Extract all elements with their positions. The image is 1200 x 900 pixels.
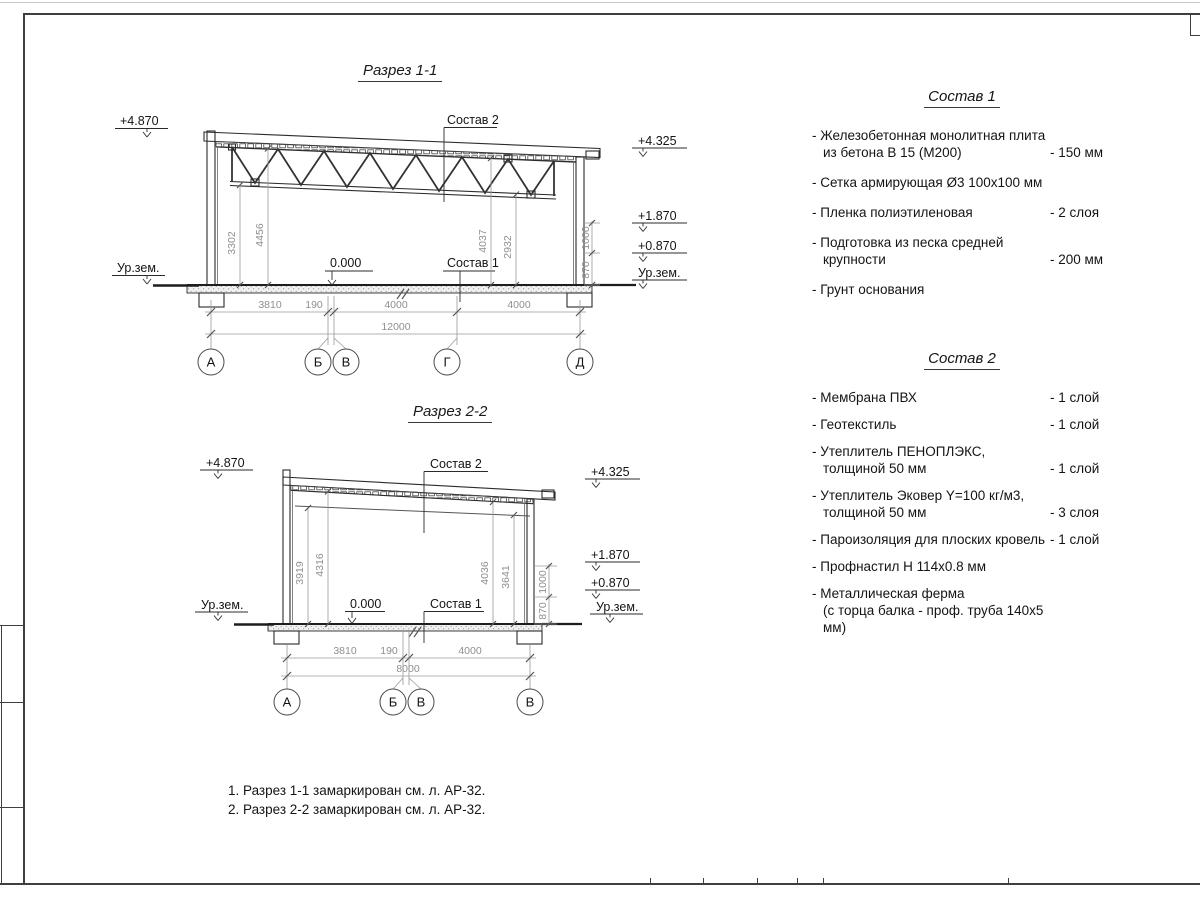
s1-dim-chain: 3810 190 4000 4000 12000	[205, 296, 586, 349]
material-item: - Геотекстиль - 1 слой	[812, 416, 1112, 433]
elevation-value: +0.870	[591, 576, 630, 590]
section2-title: Разрез 2-2	[408, 403, 492, 423]
section1-drawing: Состав 2 Состав 1 0.000 +4.870 Ур.зем. +…	[95, 95, 695, 395]
composition2-title: Состав 2	[812, 350, 1112, 370]
elevation-arrow-icon	[639, 280, 647, 289]
elevation-value: +1.870	[591, 548, 630, 562]
s2-footing	[517, 631, 542, 644]
material-item: - Металлическая ферма (с торца балка - п…	[812, 585, 1112, 636]
material-item: - Подготовка из песка средней крупности …	[812, 234, 1112, 268]
left-stamp-edge	[1, 625, 2, 883]
material-qty: - 200 мм	[1046, 251, 1112, 268]
walldim-1000: 1000	[537, 570, 549, 594]
hdim-190: 190	[305, 299, 323, 311]
note-line-2: 2. Разрез 2-2 замаркирован см. л. АР-32.	[228, 800, 485, 819]
s2-sostav1-callout: Состав 1	[424, 597, 484, 643]
frame-bottom-line	[0, 883, 1200, 885]
section1-title: Разрез 1-1	[358, 62, 442, 82]
material-item: - Пароизоляция для плоских кровель - 1 с…	[812, 531, 1112, 548]
hdim-4000: 4000	[384, 299, 408, 311]
composition2-title-text: Состав 2	[924, 350, 1000, 370]
frame-top-line	[23, 13, 1200, 15]
axis-B: Б	[314, 355, 323, 370]
hdim-4000: 4000	[458, 645, 482, 657]
titleblock-tick	[703, 878, 704, 883]
s1-sostav1-callout: Состав 1	[443, 256, 499, 302]
material-qty: - 1 слой	[1046, 460, 1112, 477]
s2-footing	[274, 631, 299, 644]
axis-B: Б	[389, 695, 398, 710]
s2-zero-label: 0.000	[350, 597, 381, 611]
material-item: - Профнастил Н 114х0.8 мм	[812, 558, 1112, 575]
composition2-panel: Состав 2 - Мембрана ПВХ - 1 слой - Геоте…	[812, 350, 1112, 646]
material-name: - Мембрана ПВХ	[812, 389, 1046, 406]
left-stamp-divider	[0, 625, 24, 626]
axis-A: А	[283, 695, 292, 710]
s2-elevation-right-2: +1.870	[585, 548, 640, 571]
elevation-value: Ур.зем.	[638, 266, 680, 280]
s2-zero-mark: 0.000	[345, 597, 385, 624]
titleblock-tick	[823, 878, 824, 883]
paper-edge-line	[0, 2, 1200, 3]
material-name: - Подготовка из песка средней крупности	[812, 234, 1046, 268]
s2-wall-dims: 1000 870	[534, 563, 557, 627]
vdim-4456: 4456	[254, 223, 266, 247]
vdim-2932: 2932	[502, 235, 514, 259]
vdim-3919: 3919	[294, 561, 306, 585]
elevation-arrow-icon	[214, 470, 222, 479]
elevation-value: +0.870	[638, 239, 677, 253]
frame-corner-box-left	[1190, 14, 1191, 35]
elevation-value: Ур.зем.	[117, 261, 159, 275]
s1-sostav2-label: Состав 2	[447, 113, 499, 127]
material-name: - Утеплитель ПЕНОПЛЭКС, толщиной 50 мм	[812, 443, 1046, 477]
sheet-notes: 1. Разрез 1-1 замаркирован см. л. АР-32.…	[228, 781, 485, 819]
s1-wall-dims: 1000 870	[580, 220, 600, 288]
elevation-arrow-icon	[592, 562, 600, 571]
elevation-arrow-icon	[592, 479, 600, 488]
elevation-value: Ур.зем.	[201, 598, 243, 612]
s2-elevation-right-ground: Ур.зем.	[590, 600, 643, 623]
vdim-4037: 4037	[477, 229, 489, 253]
elevation-value: +4.870	[206, 456, 245, 470]
hdim-190: 190	[380, 645, 398, 657]
frame-corner-box-bottom	[1190, 35, 1200, 36]
material-name: - Сетка армирующая Ø3 100х100 мм	[812, 174, 1046, 191]
axis-V: В	[342, 355, 351, 370]
vdim-3302: 3302	[226, 231, 238, 255]
note-line-1: 1. Разрез 1-1 замаркирован см. л. АР-32.	[228, 781, 485, 800]
drawing-sheet: Разрез 1-1 Разрез 2-2	[0, 0, 1200, 900]
elevation-arrow-icon	[639, 253, 647, 262]
s2-roof	[283, 477, 555, 516]
material-qty: - 2 слоя	[1046, 204, 1112, 221]
material-item: - Утеплитель ПЕНОПЛЭКС, толщиной 50 мм -…	[812, 443, 1112, 477]
s2-vertical-dims: 3919 4316 4036 3641	[294, 489, 517, 628]
titleblock-tick	[757, 878, 758, 883]
material-item: - Сетка армирующая Ø3 100х100 мм	[812, 174, 1112, 191]
elevation-arrow-icon	[606, 614, 614, 623]
s2-elevation-right-3: +0.870	[585, 576, 640, 599]
material-item: - Грунт основания	[812, 281, 1112, 298]
s1-elevation-left-top: +4.870	[115, 114, 168, 137]
s2-elevation-right-1: +4.325	[585, 465, 640, 488]
material-item: - Мембрана ПВХ - 1 слой	[812, 389, 1112, 406]
s2-sostav1-label: Состав 1	[430, 597, 482, 611]
s2-elevation-left-ground: Ур.зем.	[195, 598, 248, 621]
material-item: - Утеплитель Эковер Y=100 кг/м3, толщино…	[812, 487, 1112, 521]
hdim-total-12000: 12000	[381, 321, 410, 333]
composition1-title: Состав 1	[812, 88, 1112, 108]
s2-floor	[234, 624, 582, 644]
composition1-panel: Состав 1 - Железобетонная монолитная пли…	[812, 88, 1112, 311]
s1-elevation-right-ground: Ур.зем.	[632, 266, 687, 289]
elevation-value: Ур.зем.	[596, 600, 638, 614]
elevation-arrow-icon	[214, 612, 222, 621]
material-item: - Пленка полиэтиленовая - 2 слоя	[812, 204, 1112, 221]
composition1-title-text: Состав 1	[924, 88, 1000, 108]
s2-sostav2-label: Состав 2	[430, 457, 482, 471]
elevation-value: +4.870	[120, 114, 159, 128]
vdim-4036: 4036	[479, 561, 491, 585]
s1-zero-mark: 0.000	[325, 256, 373, 285]
walldim-870: 870	[537, 602, 549, 620]
walldim-870: 870	[580, 261, 592, 279]
material-name: - Грунт основания	[812, 281, 1046, 298]
material-qty: - 1 слой	[1046, 416, 1112, 433]
s1-roof	[204, 132, 600, 162]
axis-V2: В	[526, 695, 535, 710]
s2-dim-chain: 3810 190 4000 8000	[281, 631, 536, 689]
elevation-arrow-icon	[639, 223, 647, 232]
hdim-4000b: 4000	[507, 299, 531, 311]
material-qty: - 1 слой	[1046, 389, 1112, 406]
material-qty: - 3 слоя	[1046, 504, 1112, 521]
s1-zero-label: 0.000	[330, 256, 361, 270]
elevation-arrow-icon	[639, 148, 647, 157]
elevation-arrow-icon	[143, 129, 151, 138]
elevation-value: +4.325	[638, 134, 677, 148]
material-name: - Пленка полиэтиленовая	[812, 204, 1046, 221]
titleblock-tick	[1008, 878, 1009, 883]
vdim-3641: 3641	[500, 565, 512, 589]
elevation-arrow-icon	[143, 276, 151, 285]
s1-elevation-right-3: +0.870	[632, 239, 687, 262]
s2-axis-bubbles: А Б В В	[274, 678, 543, 715]
s1-elevation-left-ground: Ур.зем.	[112, 261, 165, 284]
left-stamp-divider	[0, 702, 24, 703]
s2-beam-line	[295, 506, 530, 516]
s1-elevation-right-1: +4.325	[632, 134, 687, 157]
material-name: - Металлическая ферма (с торца балка - п…	[812, 585, 1046, 636]
material-qty: - 150 мм	[1046, 144, 1112, 161]
left-stamp-divider	[0, 807, 24, 808]
material-name: - Утеплитель Эковер Y=100 кг/м3, толщино…	[812, 487, 1046, 521]
elevation-value: +4.325	[591, 465, 630, 479]
s1-elevation-right-2: +1.870	[632, 209, 687, 232]
titleblock-tick	[650, 878, 651, 883]
s1-footing	[199, 293, 224, 307]
material-name: - Геотекстиль	[812, 416, 1046, 433]
elevation-arrow-icon	[592, 590, 600, 599]
s1-footing	[567, 293, 592, 307]
material-name: - Железобетонная монолитная плита из бет…	[812, 127, 1046, 161]
vdim-4316: 4316	[314, 553, 326, 577]
titleblock-tick	[797, 878, 798, 883]
hdim-3810: 3810	[333, 645, 357, 657]
s2-elevation-left-top: +4.870	[200, 456, 253, 479]
axis-G: Г	[443, 355, 450, 370]
material-item: - Железобетонная монолитная плита из бет…	[812, 127, 1112, 161]
elevation-value: +1.870	[638, 209, 677, 223]
axis-A: А	[207, 355, 216, 370]
material-name: - Пароизоляция для плоских кровель	[812, 531, 1046, 548]
walldim-1000: 1000	[580, 226, 592, 250]
hdim-3810: 3810	[258, 299, 282, 311]
axis-V: В	[417, 695, 426, 710]
material-qty: - 1 слой	[1046, 531, 1112, 548]
section2-drawing: Состав 2 Состав 1 0.000 +4.870 Ур.зем. +…	[140, 425, 680, 725]
axis-D: Д	[576, 355, 585, 370]
material-name: - Профнастил Н 114х0.8 мм	[812, 558, 1046, 575]
frame-left-line	[23, 13, 25, 884]
s1-axis-bubbles: А Б В Г Д	[198, 338, 593, 375]
hdim-total-8000: 8000	[396, 663, 420, 675]
